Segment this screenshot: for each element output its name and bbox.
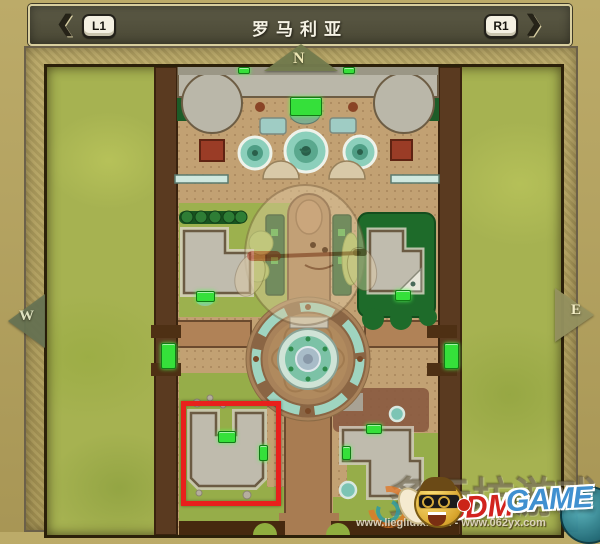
next-map-arrow-icon[interactable]: ❯ xyxy=(525,12,543,37)
watermark-game-text: GAME xyxy=(505,481,593,519)
compass-north-label: N xyxy=(293,50,305,68)
compass-east-label: E xyxy=(571,302,581,319)
r1-shoulder-button[interactable]: R1 xyxy=(484,14,518,38)
pool xyxy=(390,407,404,421)
watermark-mascot-icon xyxy=(402,474,474,532)
fountain xyxy=(239,137,271,169)
pool xyxy=(340,482,356,498)
map-screen: ❮ L1 罗马利亚 R1 ❯ xyxy=(0,0,600,532)
map-title-bar: ❮ L1 罗马利亚 R1 ❯ xyxy=(28,4,572,46)
compass-west-label: W xyxy=(19,308,34,325)
